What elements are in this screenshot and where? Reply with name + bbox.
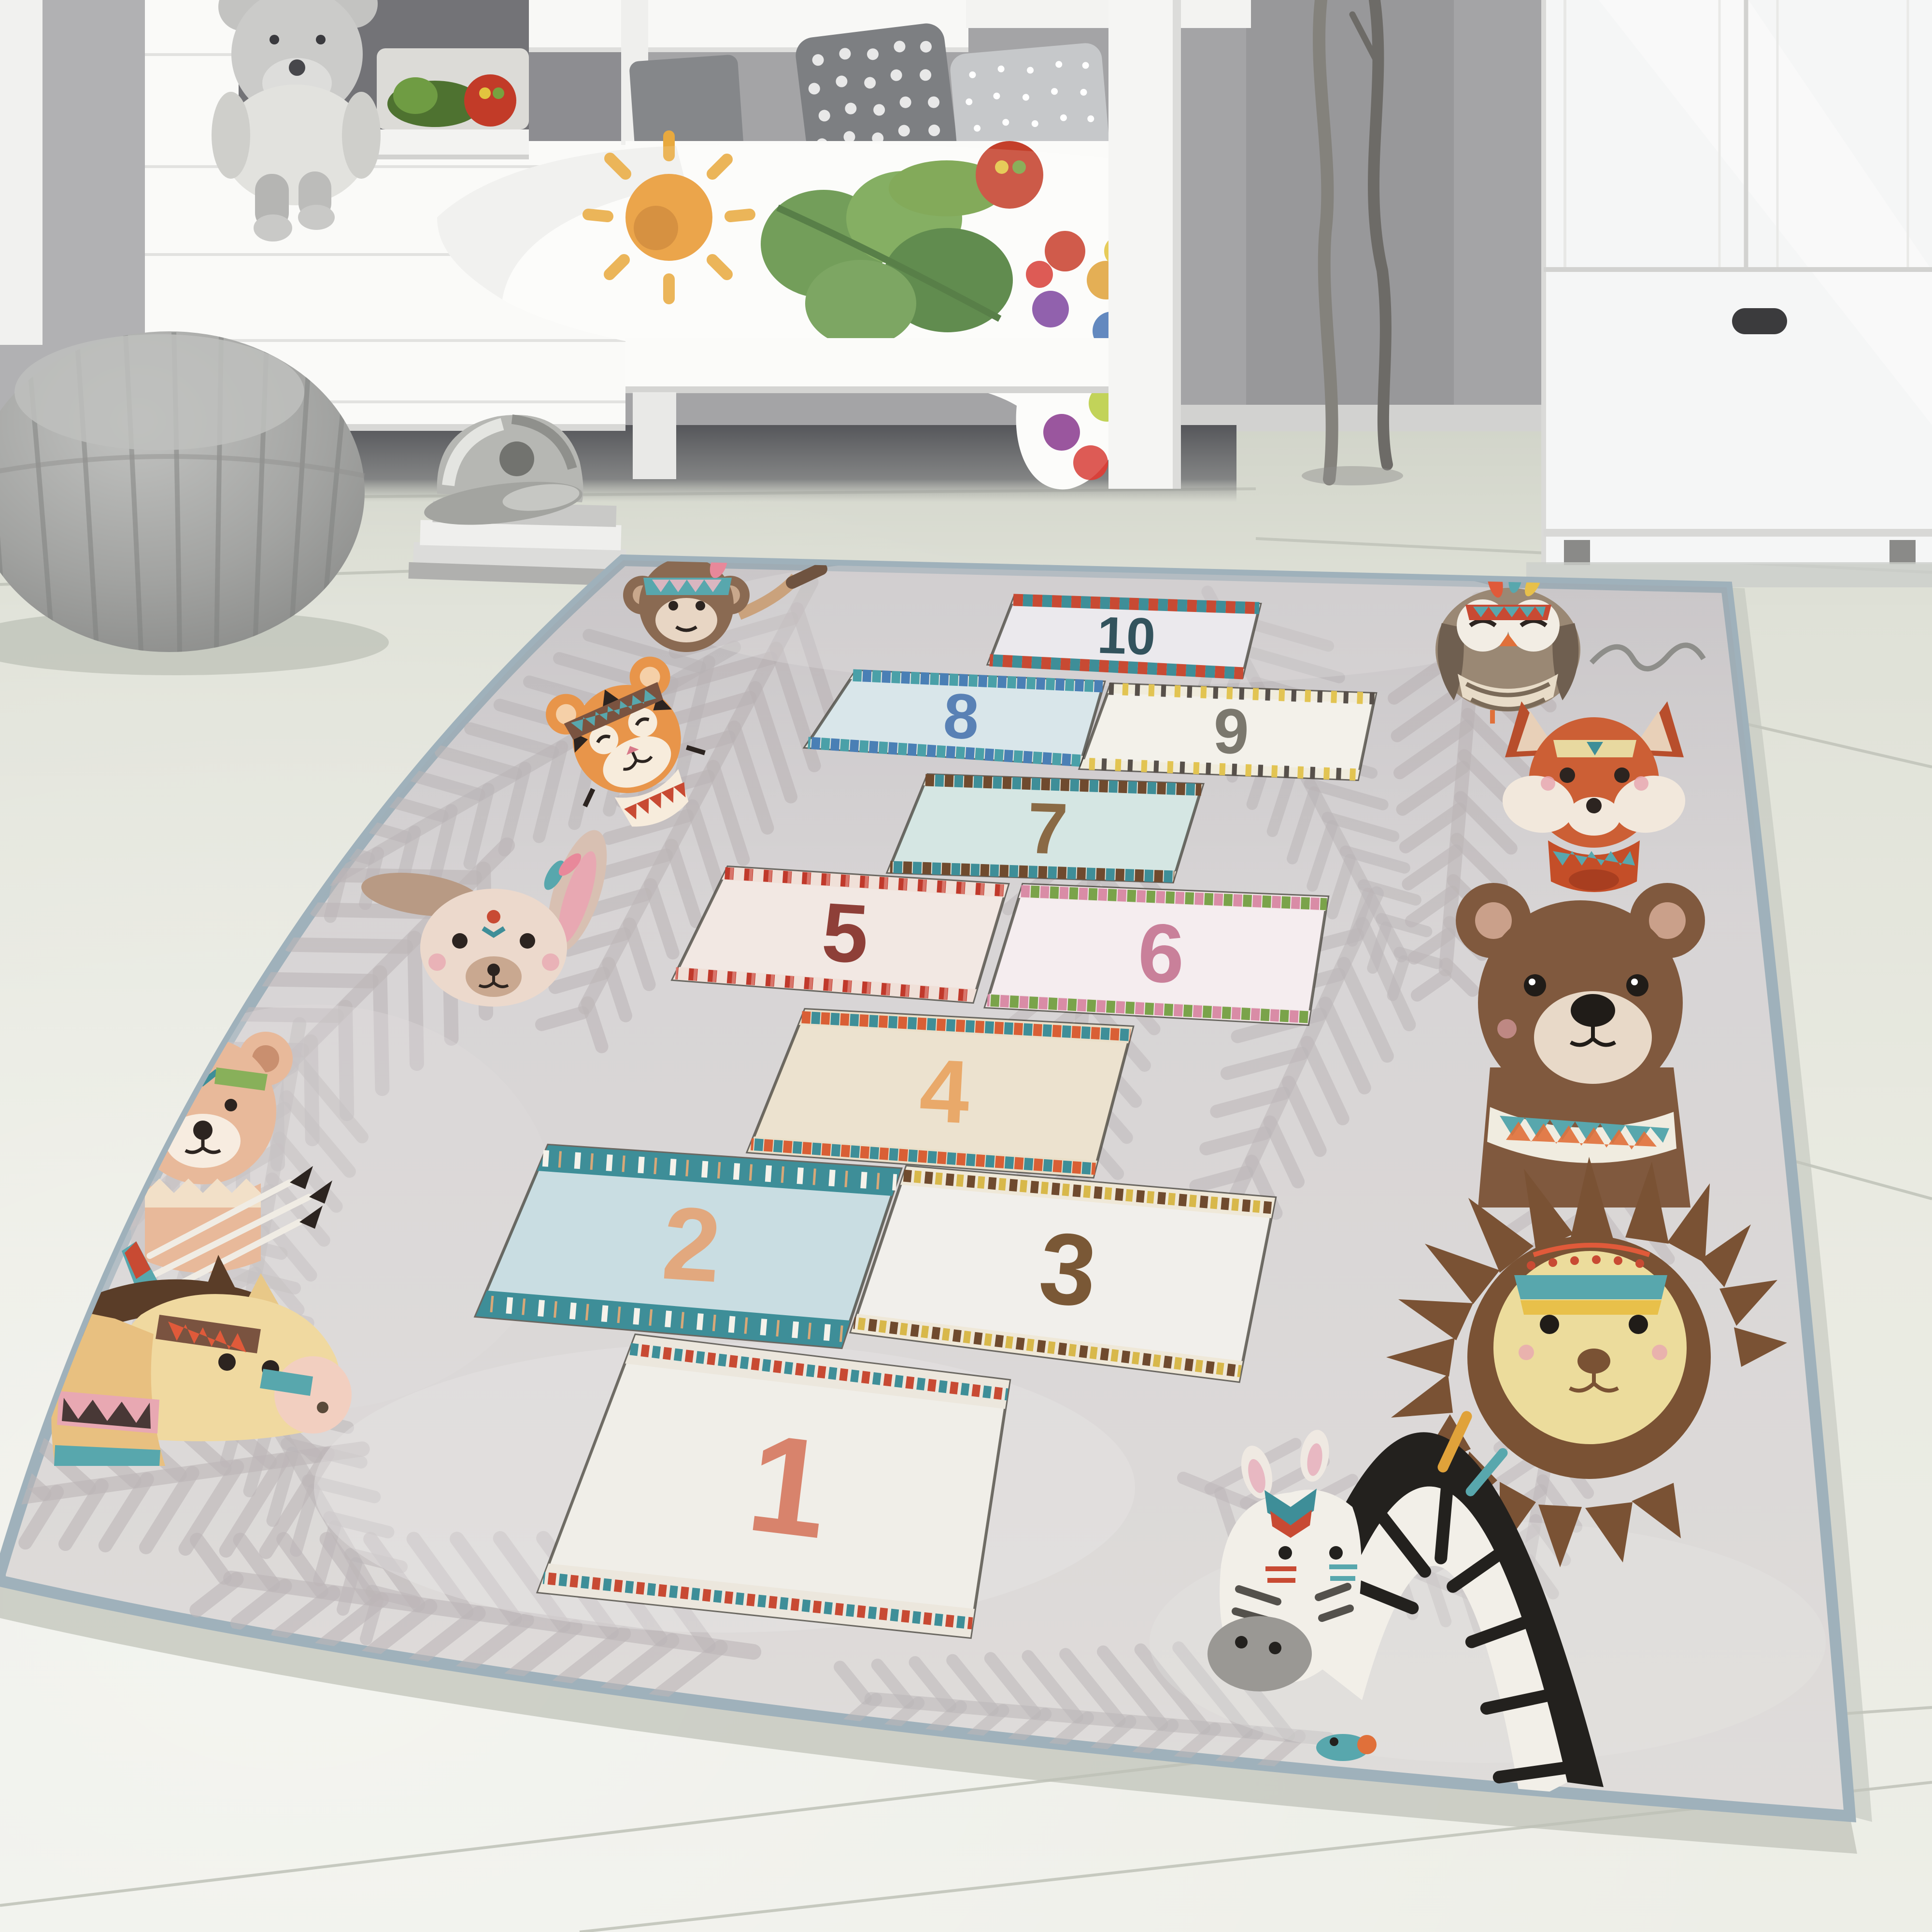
- svg-text:10: 10: [1096, 606, 1156, 666]
- svg-text:5: 5: [819, 885, 871, 981]
- svg-text:2: 2: [659, 1184, 724, 1304]
- svg-text:6: 6: [1136, 906, 1186, 1001]
- svg-text:3: 3: [1035, 1210, 1101, 1328]
- svg-text:9: 9: [1212, 695, 1250, 767]
- svg-text:4: 4: [917, 1040, 972, 1142]
- svg-text:8: 8: [942, 680, 980, 753]
- svg-text:7: 7: [1026, 787, 1069, 870]
